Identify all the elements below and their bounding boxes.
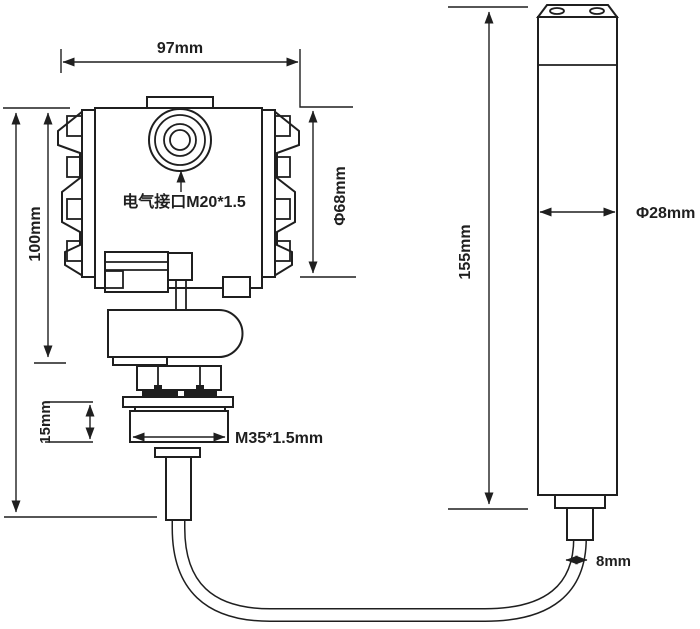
- thread-label: M35*1.5mm: [235, 430, 323, 447]
- electrical-interface-label: 电气接口M20*1.5: [122, 192, 246, 211]
- cable-stem: [166, 457, 191, 520]
- dim-housing-diameter: Φ68mm: [300, 111, 356, 277]
- dim-neck-height: 15mm: [37, 400, 93, 443]
- probe: [538, 5, 617, 540]
- left-flange: [58, 110, 95, 277]
- right-flange: [262, 110, 299, 277]
- side-conduit: [223, 277, 250, 297]
- dim-probe-length: 155mm: [448, 7, 528, 509]
- probe-tip: [567, 508, 593, 540]
- collar: [155, 448, 200, 457]
- flange-plate: [123, 397, 233, 407]
- probe-diameter-label: Φ28mm: [636, 205, 695, 222]
- probe-step: [555, 495, 605, 508]
- neck-height-label: 15mm: [37, 400, 54, 443]
- gasket: [184, 390, 217, 396]
- dimension-drawing: 97mm 100mm Φ68mm 电气接口M20*1.5 15mm: [0, 0, 700, 629]
- housing-width-label: 97mm: [157, 40, 203, 57]
- probe-body: [538, 17, 617, 495]
- housing-height-label: 100mm: [27, 206, 44, 261]
- transmitter-dimension-diagram: 97mm 100mm Φ68mm 电气接口M20*1.5 15mm: [0, 0, 700, 629]
- housing-diameter-label: Φ68mm: [332, 166, 349, 225]
- cable-diameter-label: 8mm: [596, 553, 631, 570]
- process-connection: [108, 310, 243, 520]
- cable: [179, 518, 581, 615]
- connection-boss: [108, 310, 243, 357]
- gasket: [142, 390, 178, 396]
- probe-length-label: 155mm: [457, 224, 474, 279]
